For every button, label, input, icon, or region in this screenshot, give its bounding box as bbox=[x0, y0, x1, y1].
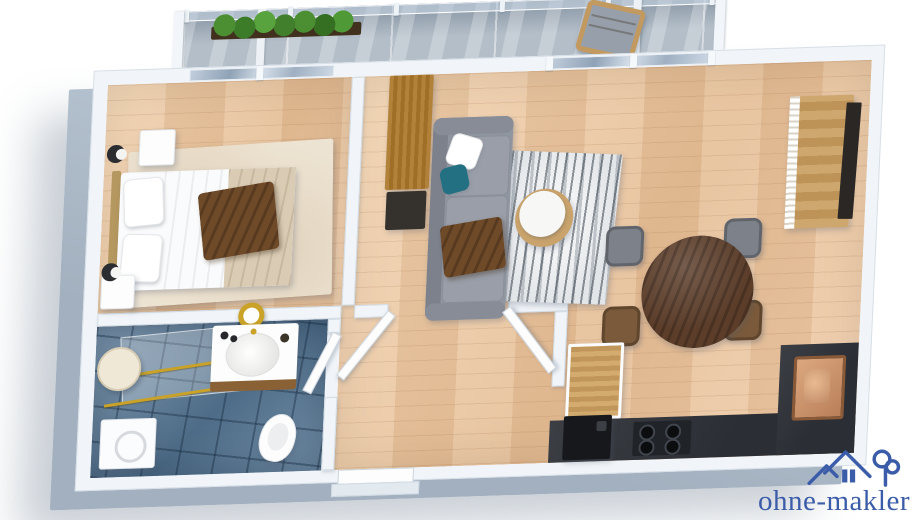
copper-sink bbox=[791, 355, 846, 421]
kitchen-wood-cabinet bbox=[565, 342, 624, 420]
apartment-outline bbox=[75, 44, 886, 491]
dining-chair-gray bbox=[605, 226, 645, 267]
window-mullion bbox=[256, 66, 264, 80]
sofa bbox=[425, 116, 514, 321]
balcony-end-wall bbox=[172, 12, 185, 68]
dark-lowboard bbox=[385, 191, 427, 230]
railing-post bbox=[184, 9, 190, 22]
gas-hob bbox=[632, 420, 692, 456]
sofa-throw-brown bbox=[440, 216, 507, 278]
double-bed bbox=[116, 167, 296, 291]
window-mullion bbox=[546, 56, 554, 70]
wall-bathroom-hall-upper bbox=[327, 319, 341, 333]
bed-throw-brown bbox=[198, 181, 280, 261]
hob-burner bbox=[639, 424, 656, 441]
floorplan-3d-view bbox=[75, 44, 886, 491]
railing-post bbox=[500, 0, 506, 12]
watermark-logo: ohne-makler bbox=[758, 440, 910, 518]
bed-pillow bbox=[123, 176, 164, 228]
hob-burner bbox=[638, 439, 655, 456]
soap-tray bbox=[280, 333, 289, 342]
sofa-armrest bbox=[433, 116, 514, 136]
planter-box bbox=[211, 10, 364, 43]
window-mullion bbox=[630, 54, 638, 68]
washing-machine bbox=[99, 418, 157, 470]
nightstand bbox=[138, 129, 176, 166]
balcony-end-wall bbox=[713, 0, 726, 50]
window-mullion bbox=[708, 51, 716, 65]
dining-chair-brown bbox=[601, 306, 641, 347]
fridge bbox=[562, 415, 612, 461]
floorplan-canvas: ohne-makler bbox=[0, 0, 924, 520]
hob-burner bbox=[664, 438, 681, 455]
cosmetics-jar bbox=[220, 331, 228, 339]
hob-burner bbox=[665, 423, 682, 440]
brand-text: ohne-makler bbox=[758, 485, 910, 518]
wardrobe bbox=[385, 74, 434, 190]
sofa-armrest bbox=[425, 301, 506, 321]
vanity-sink bbox=[210, 323, 299, 384]
railing-post bbox=[394, 3, 400, 16]
railing-post bbox=[709, 0, 715, 5]
